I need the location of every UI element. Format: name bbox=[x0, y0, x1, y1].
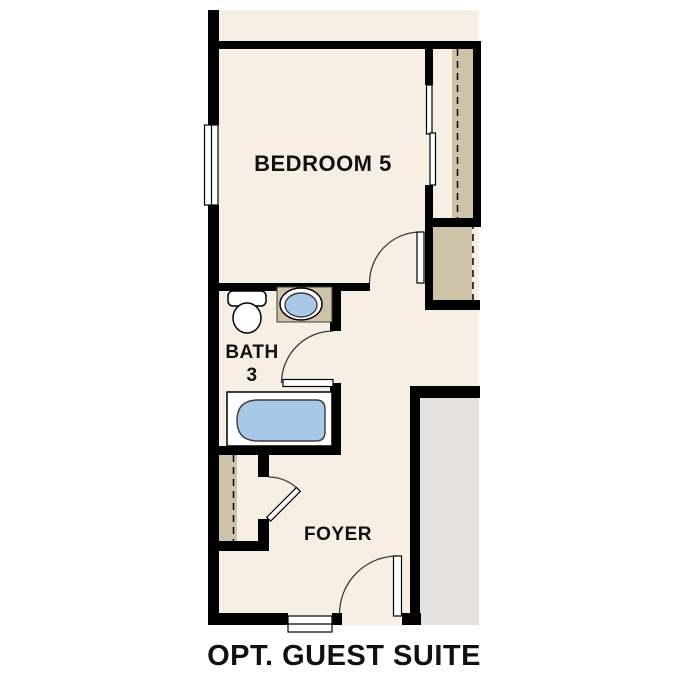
bedroom-closet-shelf bbox=[452, 49, 473, 218]
floor-plan-svg: BEDROOM 5 BATH 3 FOYER OPT. GUEST SUITE bbox=[0, 0, 687, 687]
sink-vanity bbox=[277, 287, 332, 322]
door-leaf bbox=[394, 556, 402, 616]
wall-segment bbox=[425, 227, 433, 303]
garage-slab bbox=[420, 397, 479, 625]
plan-caption: OPT. GUEST SUITE bbox=[207, 640, 481, 672]
wall-segment bbox=[410, 387, 420, 625]
bath-number-label: 3 bbox=[246, 365, 257, 386]
wall-segment bbox=[208, 613, 288, 625]
toilet-bowl bbox=[233, 303, 261, 333]
foyer-window bbox=[288, 616, 332, 632]
wall-segment bbox=[219, 41, 481, 49]
wall-segment bbox=[473, 41, 481, 218]
wall-segment bbox=[425, 300, 480, 310]
wall-segment bbox=[208, 446, 341, 455]
door-leaf bbox=[417, 232, 424, 283]
wall-segment bbox=[425, 49, 433, 85]
wall-segment bbox=[332, 613, 342, 625]
foyer-label: FOYER bbox=[304, 524, 372, 545]
bathtub-basin bbox=[237, 400, 325, 441]
wall-segment bbox=[410, 386, 480, 398]
wall-segment bbox=[208, 205, 219, 625]
bedroom-label: BEDROOM 5 bbox=[254, 151, 392, 176]
door-leaf bbox=[283, 380, 333, 387]
wall-segment bbox=[258, 455, 269, 477]
wall-segment bbox=[208, 541, 263, 551]
bathtub bbox=[227, 392, 332, 446]
bedroom-window bbox=[205, 125, 219, 205]
hall-closet-shelf bbox=[433, 227, 472, 300]
bypass-door-leaf bbox=[430, 133, 436, 185]
wall-segment bbox=[208, 10, 219, 125]
bath-label: BATH bbox=[225, 342, 278, 363]
sink-basin bbox=[285, 293, 317, 317]
floor-plan: BEDROOM 5 BATH 3 FOYER OPT. GUEST SUITE bbox=[0, 0, 687, 687]
bypass-door-leaf bbox=[427, 85, 433, 134]
wall-segment bbox=[425, 185, 433, 218]
